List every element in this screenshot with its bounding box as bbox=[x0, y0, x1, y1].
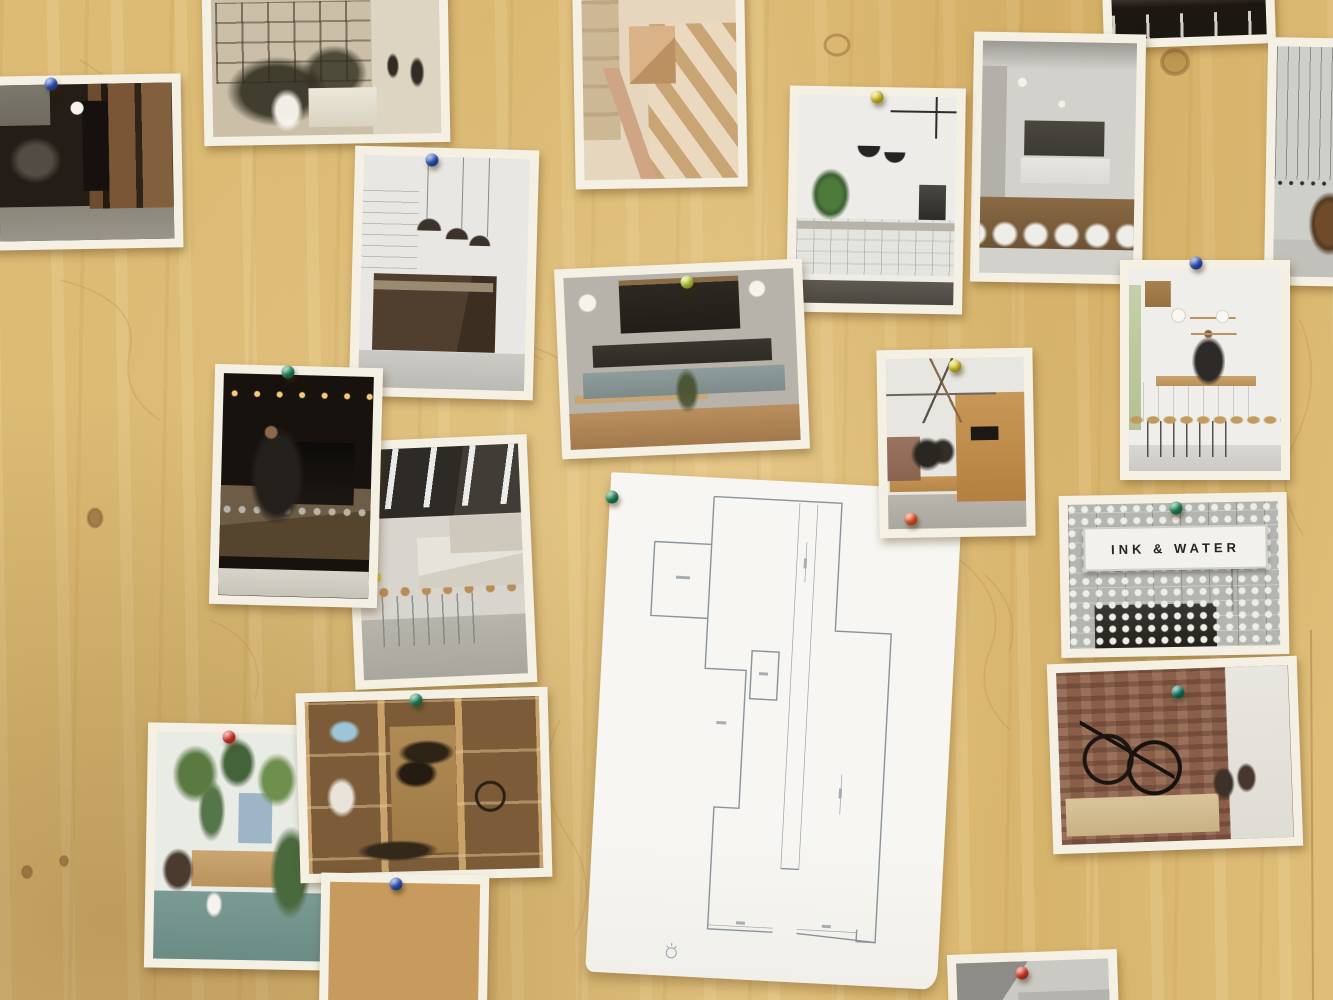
photo-image-bike-room bbox=[0, 82, 174, 241]
photo-grey-cafe bbox=[970, 32, 1146, 285]
ink-and-water-sign-text: INK & WATER bbox=[1111, 540, 1240, 557]
push-pin-blue bbox=[1190, 257, 1203, 270]
photo-image-peg-wall bbox=[1273, 46, 1333, 277]
photo-image-barista-dark bbox=[218, 373, 374, 599]
photo-image-gear-shelves bbox=[305, 696, 543, 874]
photo-white-tile-plant bbox=[786, 85, 966, 314]
photo-image-menu-board bbox=[563, 268, 800, 450]
push-pin-red bbox=[1016, 967, 1029, 980]
push-pin-blue bbox=[45, 78, 58, 91]
photo-image-white-tile-plant bbox=[795, 95, 957, 306]
photo-menu-board bbox=[554, 259, 810, 460]
photo-image-wood-box bbox=[581, 0, 738, 180]
push-pin-blue bbox=[426, 154, 439, 167]
push-pin-green bbox=[606, 491, 619, 504]
photo-bike-room bbox=[0, 73, 184, 250]
push-pin-yellow bbox=[949, 360, 962, 373]
photo-image-osb-room bbox=[886, 357, 1027, 529]
photo-barista-white bbox=[1120, 260, 1290, 480]
photo-barista-dark bbox=[209, 364, 383, 608]
ink-and-water-sign: INK & WATER bbox=[1083, 524, 1268, 572]
push-pin-red bbox=[223, 731, 236, 744]
photo-image-white-industrial bbox=[358, 155, 530, 391]
photo-image-glass-interior bbox=[211, 0, 441, 137]
photo-wood-box bbox=[572, 0, 747, 189]
push-pin-lime bbox=[681, 276, 694, 289]
photo-peg-wall bbox=[1264, 37, 1333, 287]
photo-pendant-person bbox=[319, 873, 490, 1000]
photo-image-pendant-person bbox=[328, 882, 480, 1000]
push-pin-green bbox=[410, 694, 423, 707]
plywood-board: INK & WATER bbox=[0, 0, 1333, 1000]
photo-white-industrial bbox=[349, 146, 539, 401]
push-pin-green bbox=[282, 366, 295, 379]
photo-image-partial-grey bbox=[956, 958, 1110, 1000]
push-pin-blue bbox=[390, 878, 403, 891]
photo-ink-water: INK & WATER bbox=[1059, 492, 1290, 658]
floor-plan-drawing bbox=[585, 472, 963, 990]
photo-partial-grey bbox=[947, 949, 1119, 1000]
push-pin-yellow bbox=[871, 91, 884, 104]
floor-plan-paper bbox=[585, 472, 963, 990]
photo-gear-shelves bbox=[296, 687, 553, 884]
photo-osb-room bbox=[876, 348, 1035, 539]
photo-image-barista-white bbox=[1129, 269, 1281, 471]
photo-image-ink-water: INK & WATER bbox=[1068, 501, 1280, 649]
push-pin-green bbox=[1170, 502, 1183, 515]
photo-glass-interior bbox=[202, 0, 451, 146]
push-pin-teal bbox=[1172, 686, 1185, 699]
push-pin-orange bbox=[905, 513, 918, 526]
photo-image-grey-cafe bbox=[979, 41, 1137, 276]
